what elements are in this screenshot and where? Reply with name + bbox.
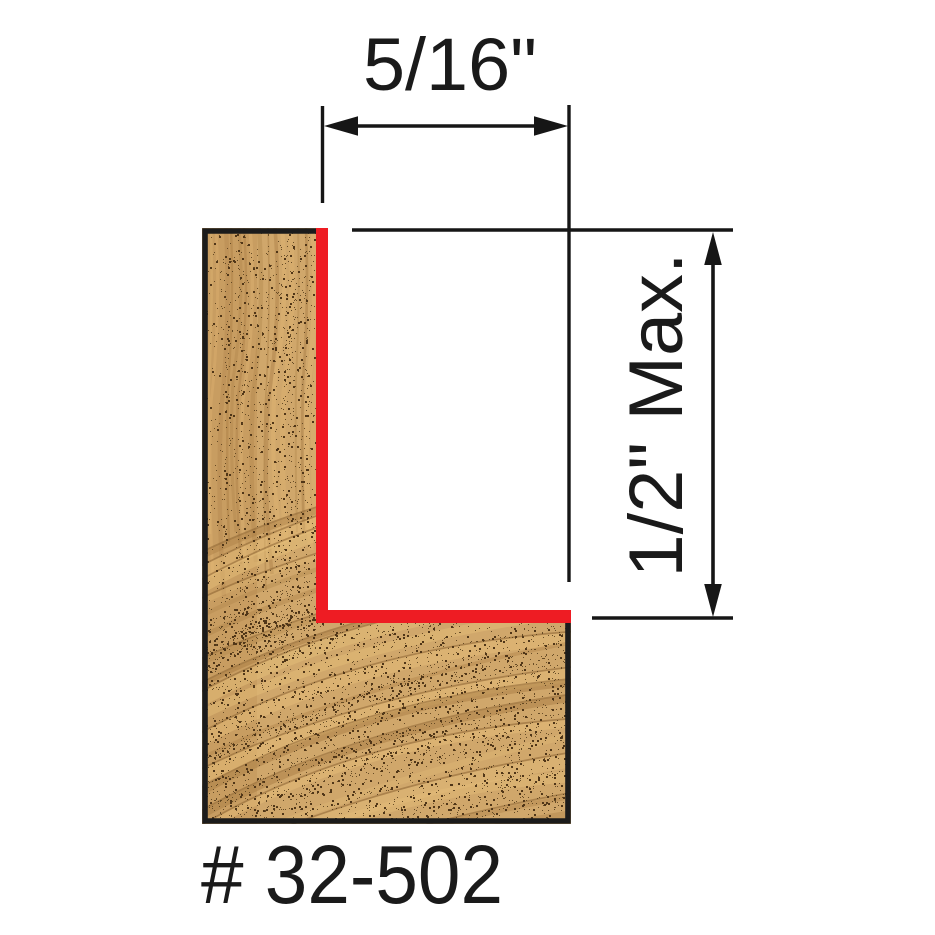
svg-text:# 32-502: # 32-502 <box>201 828 503 921</box>
svg-text:1/2" Max.: 1/2" Max. <box>614 253 699 578</box>
svg-text:5/16": 5/16" <box>363 23 537 106</box>
